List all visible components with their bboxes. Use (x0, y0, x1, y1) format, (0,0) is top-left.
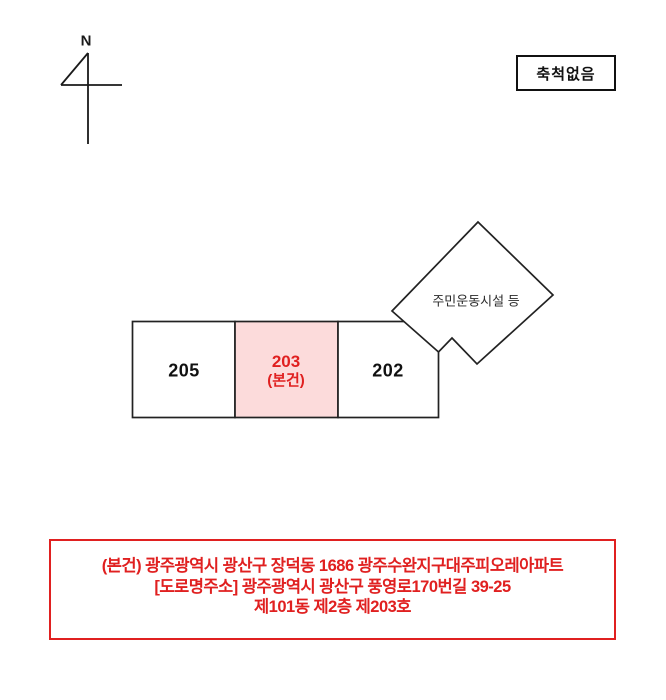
block-203-subject-tag: (본건) (267, 371, 305, 390)
block-205-label: 205 (168, 361, 200, 382)
facility-label: 주민운동시설 등 (432, 291, 519, 310)
scale-box: 축척없음 (516, 55, 616, 91)
address-line-lot: (본건) 광주광역시 광산구 장덕동 1686 광주수완지구대주피오레아파트 (51, 556, 614, 577)
north-label: N (81, 33, 92, 50)
scale-box-label: 축척없음 (536, 63, 595, 84)
address-line-unit: 제101동 제2층 제203호 (51, 597, 614, 618)
north-arrow-icon (61, 53, 122, 144)
address-box: (본건) 광주광역시 광산구 장덕동 1686 광주수완지구대주피오레아파트 [… (49, 539, 616, 640)
block-202-label: 202 (372, 361, 404, 382)
block-203-label: 203 (본건) (267, 352, 305, 390)
block-203-number: 203 (267, 352, 305, 371)
appraisal-location-sketch: N 축척없음 205 203 (본건) 202 주민운동시설 등 (본건) 광주… (0, 0, 666, 700)
address-line-road: [도로명주소] 광주광역시 광산구 풍영로170번길 39-25 (51, 577, 614, 598)
